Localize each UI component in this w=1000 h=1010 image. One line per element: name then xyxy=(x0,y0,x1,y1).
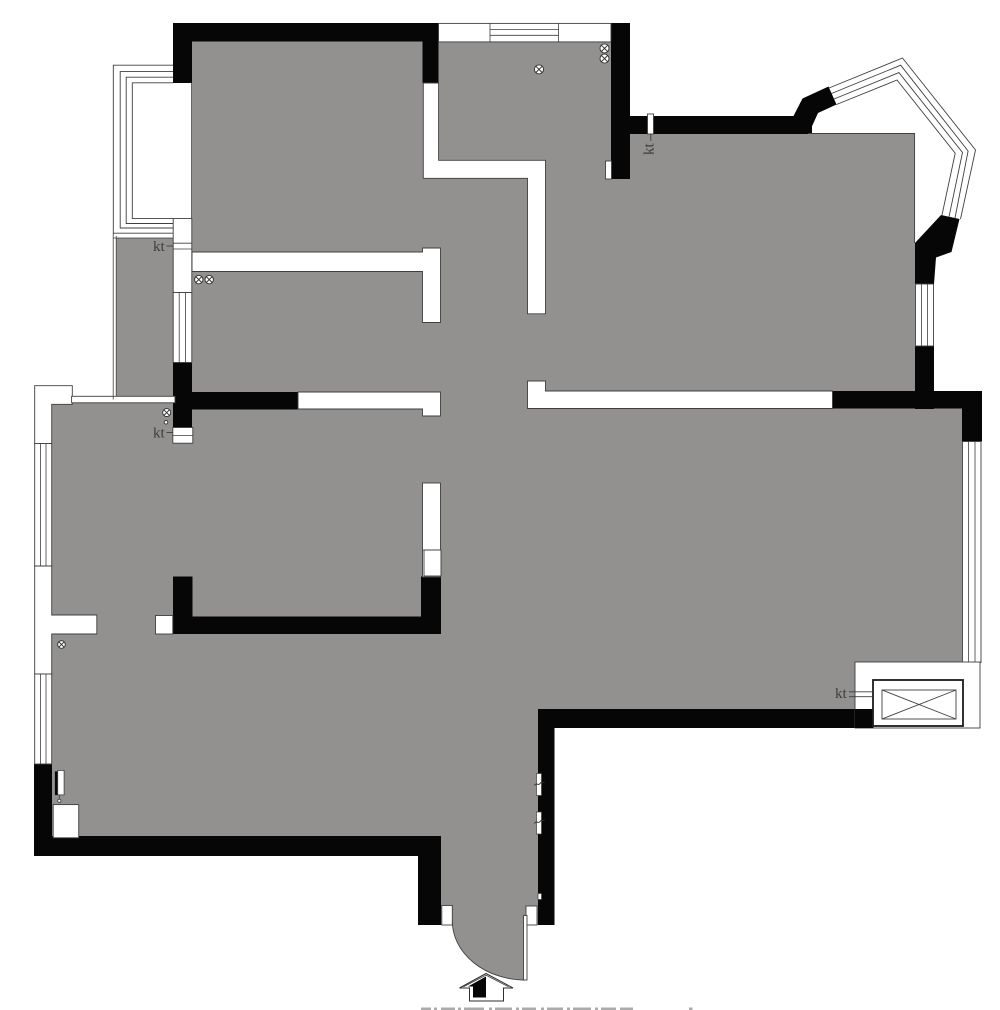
svg-text:kt: kt xyxy=(153,426,166,442)
svg-text:kt: kt xyxy=(642,143,658,156)
svg-text:kt: kt xyxy=(835,686,848,702)
svg-text:kt: kt xyxy=(153,239,166,255)
